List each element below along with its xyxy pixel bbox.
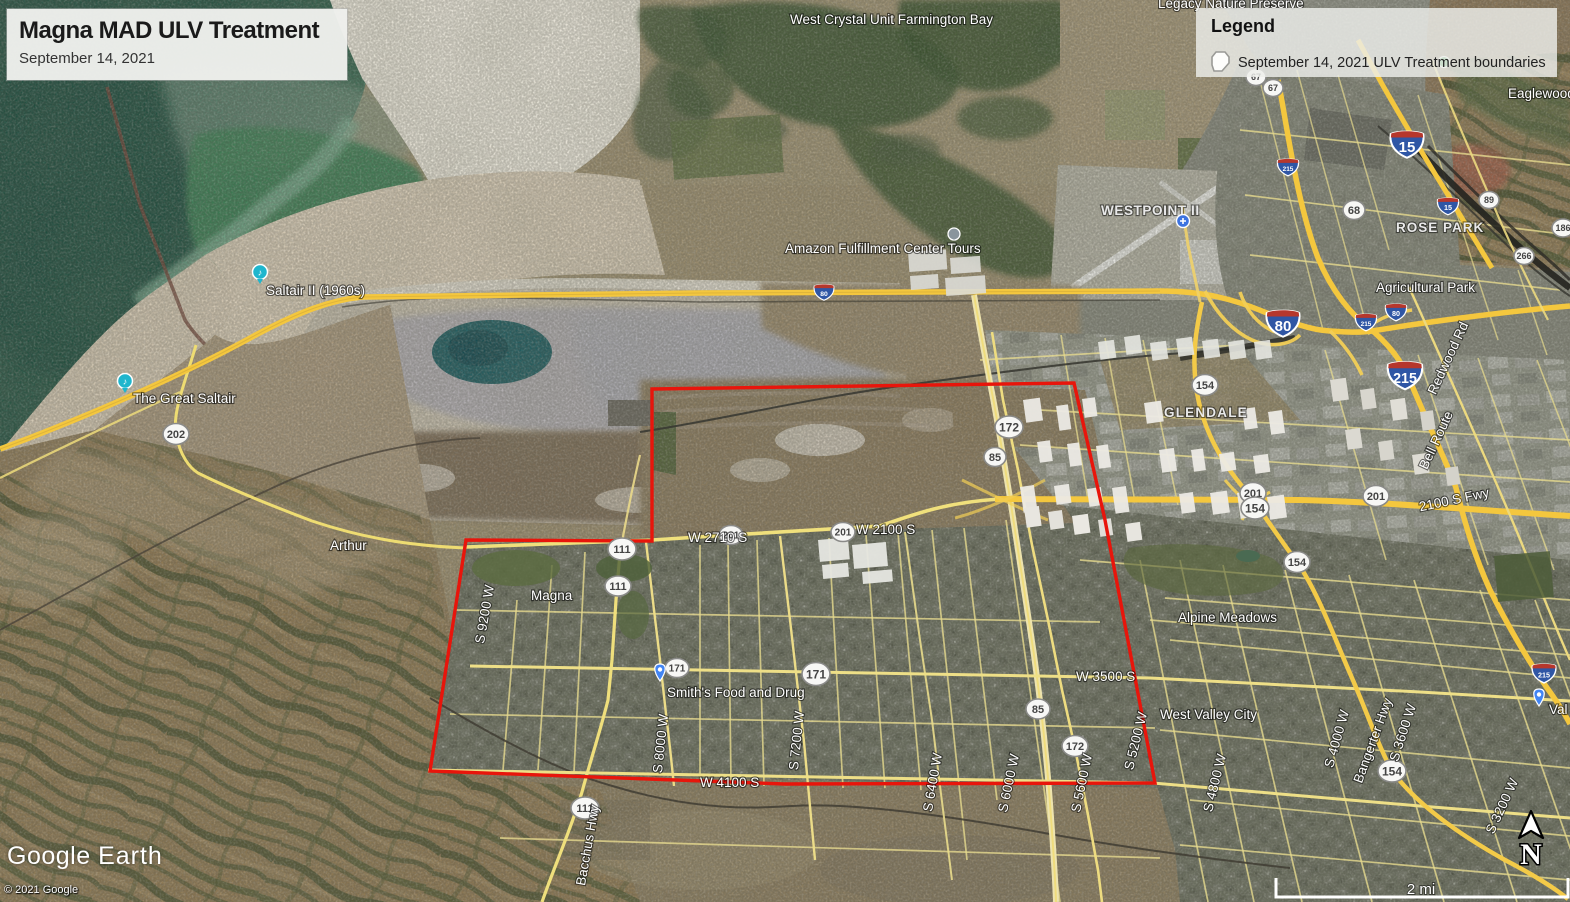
svg-text:West Crystal Unit Farmington B: West Crystal Unit Farmington Bay — [790, 12, 993, 27]
svg-text:The Great Saltair: The Great Saltair — [133, 391, 236, 406]
svg-text:80: 80 — [1392, 309, 1400, 318]
svg-text:Saltair II (1960s): Saltair II (1960s) — [266, 283, 365, 298]
svg-text:W 2710 S: W 2710 S — [688, 530, 747, 545]
svg-text:N: N — [1520, 838, 1542, 871]
svg-text:Alpine Meadows: Alpine Meadows — [1178, 610, 1277, 625]
svg-text:111: 111 — [613, 544, 630, 556]
svg-text:Arthur: Arthur — [330, 538, 367, 553]
svg-text:111: 111 — [609, 581, 626, 593]
svg-text:Eaglewood Go: Eaglewood Go — [1508, 86, 1570, 101]
svg-text:172: 172 — [999, 420, 1019, 434]
svg-text:ROSE PARK: ROSE PARK — [1396, 220, 1484, 235]
svg-text:Amazon Fulfillment Center Tour: Amazon Fulfillment Center Tours — [785, 241, 981, 256]
svg-text:GLENDALE: GLENDALE — [1164, 405, 1248, 420]
svg-text:♪: ♪ — [123, 377, 128, 387]
svg-text:♪: ♪ — [258, 268, 263, 278]
svg-text:80: 80 — [1275, 318, 1292, 335]
svg-text:201: 201 — [1367, 491, 1385, 503]
svg-text:154: 154 — [1382, 764, 1402, 778]
svg-text:67: 67 — [1268, 83, 1278, 93]
svg-text:85: 85 — [1032, 704, 1044, 716]
svg-text:154: 154 — [1288, 557, 1307, 569]
svg-text:201: 201 — [835, 528, 852, 539]
svg-text:266: 266 — [1516, 251, 1531, 261]
svg-text:W 4100 S: W 4100 S — [700, 775, 759, 790]
svg-text:172: 172 — [1066, 741, 1084, 753]
svg-text:West Valley City: West Valley City — [1160, 707, 1257, 722]
svg-text:89: 89 — [1484, 195, 1494, 205]
svg-text:186: 186 — [1555, 223, 1570, 233]
svg-text:215: 215 — [1283, 166, 1294, 173]
svg-text:85: 85 — [989, 452, 1001, 464]
svg-text:215: 215 — [1538, 670, 1550, 679]
svg-text:171: 171 — [669, 664, 686, 675]
svg-text:Magna: Magna — [531, 588, 573, 603]
svg-text:171: 171 — [806, 667, 826, 681]
svg-text:202: 202 — [167, 429, 185, 441]
svg-text:W 3500 S: W 3500 S — [1076, 669, 1135, 684]
svg-text:Agricultural Park: Agricultural Park — [1376, 280, 1475, 295]
svg-text:68: 68 — [1348, 205, 1360, 217]
svg-text:215: 215 — [1361, 321, 1372, 328]
svg-text:W 2100 S: W 2100 S — [856, 522, 915, 537]
svg-text:15: 15 — [1399, 139, 1416, 156]
svg-text:Val: Val — [1549, 702, 1568, 717]
svg-text:Smith's Food and Drug: Smith's Food and Drug — [667, 685, 805, 700]
svg-text:154: 154 — [1196, 380, 1215, 392]
svg-text:80: 80 — [820, 291, 828, 298]
svg-text:154: 154 — [1245, 501, 1265, 515]
svg-text:2 mi: 2 mi — [1407, 881, 1435, 898]
svg-text:15: 15 — [1444, 203, 1452, 212]
svg-text:215: 215 — [1393, 371, 1417, 387]
